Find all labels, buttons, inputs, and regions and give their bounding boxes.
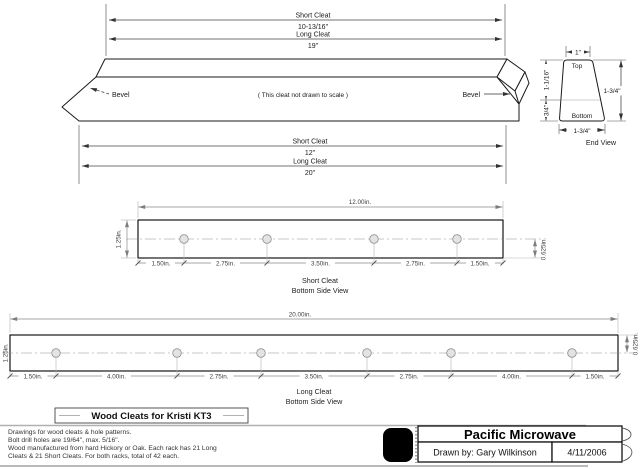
- cleat-drawing: Short Cleat 10-13/16" Long Cleat 19" Bev…: [0, 0, 640, 469]
- cleat-front-face: [62, 77, 519, 121]
- dim-value-short-cleat-top: 10-13/16": [298, 24, 329, 31]
- long-cleat-bottom-view: 20.00in. 1.25in. 0.625in. 1.50in. 4.00in…: [2, 312, 640, 407]
- short-cleat-caption-line1: Short Cleat: [302, 276, 338, 285]
- page-curl-bottom: [622, 444, 632, 461]
- overall-length-dimensions: [79, 125, 506, 184]
- chain-dim-label: 1.50in.: [24, 374, 43, 381]
- long-cleat-caption-line1: Long Cleat: [297, 387, 332, 396]
- chain-dim-label: 2.75in.: [216, 261, 235, 268]
- hole: [363, 349, 372, 358]
- end-view-lower-height: 3/4": [544, 104, 551, 116]
- cleat-top-face: [96, 59, 507, 77]
- bevel-label-right: Bevel: [462, 92, 480, 99]
- dim-label-long-cleat-top: Long Cleat: [296, 32, 330, 39]
- chain-dim-label: 1.50in.: [152, 261, 171, 268]
- hole: [263, 235, 272, 244]
- bevel-label-left: Bevel: [112, 92, 130, 99]
- dim-label-long-cleat-overall: Long Cleat: [293, 159, 327, 166]
- chain-dim-label: 1.50in.: [471, 261, 490, 268]
- hole: [447, 349, 456, 358]
- short-cleat-bottom-view: 12.00in. 1.25in. 0.625in. 1.50in. 2.75in…: [116, 199, 548, 295]
- end-view-caption: End View: [586, 138, 617, 147]
- dim-value-long-cleat-overall: 20": [305, 170, 316, 177]
- end-view: Top Bottom 1" 1-3/4" 1-3/4" 1-1/16" 3/4"…: [540, 46, 626, 147]
- dim-value-long-cleat-top: 19": [308, 43, 319, 50]
- long-cleat-hole-offset-dim: 0.625in.: [633, 333, 640, 356]
- end-view-upper-height: 1-1/16": [544, 69, 551, 90]
- cleat-3d-view: [62, 59, 529, 121]
- hole: [173, 349, 182, 358]
- company-block: Pacific Microwave Drawn by: Gary Wilkins…: [383, 426, 632, 463]
- dim-label-short-cleat-overall: Short Cleat: [292, 139, 327, 146]
- page-curl-top: [622, 428, 631, 441]
- long-cleat-caption-line2: Bottom Side View: [286, 397, 343, 406]
- end-view-bottom-width: 1-3/4": [573, 128, 591, 135]
- note-line: Drawings for wood cleats & hole patterns…: [8, 429, 132, 436]
- chain-dim-label: 2.75in.: [210, 374, 229, 381]
- short-cleat-length-dim: 12.00in.: [349, 199, 372, 206]
- drawn-by: Drawn by: Gary Wilkinson: [433, 448, 537, 458]
- chain-dim-label: 3.50in.: [311, 261, 330, 268]
- company-logo: [383, 428, 413, 462]
- hole: [568, 349, 577, 358]
- note-line: Wood manufactured from hard Hickory or O…: [8, 445, 217, 452]
- note-line: Cleats & 21 Short Cleats. For both racks…: [8, 453, 179, 460]
- company-name: Pacific Microwave: [464, 427, 576, 442]
- end-view-top-label: Top: [572, 63, 583, 70]
- long-cleat-width-dim: 1.25in.: [3, 343, 10, 362]
- dim-value-short-cleat-overall: 12": [305, 150, 316, 157]
- drawing-sheet: Short Cleat 10-13/16" Long Cleat 19" Bev…: [0, 0, 640, 469]
- chain-dim-label: 2.75in.: [400, 374, 419, 381]
- long-cleat-length-dim: 20.00in.: [289, 312, 312, 319]
- chain-dim-label: 1.50in.: [586, 374, 605, 381]
- hole: [180, 235, 189, 244]
- not-to-scale-note: ( This cleat not drawn to scale ): [258, 92, 348, 99]
- drawing-date: 4/11/2006: [567, 448, 606, 458]
- short-cleat-hole-offset-dim: 0.625in.: [541, 238, 548, 261]
- end-view-bottom-label: Bottom: [572, 113, 593, 120]
- chain-dim-label: 2.75in.: [406, 261, 425, 268]
- end-view-top-width: 1": [575, 50, 582, 57]
- chain-dim-label: 3.50in.: [305, 374, 324, 381]
- hole: [257, 349, 266, 358]
- short-cleat-width-dim: 1.25in.: [116, 229, 123, 248]
- hole: [52, 349, 61, 358]
- chain-dim-label: 4.00in.: [107, 374, 126, 381]
- dim-label-short-cleat-top: Short Cleat: [295, 13, 330, 20]
- hole: [370, 235, 379, 244]
- end-view-height: 1-3/4": [603, 88, 621, 95]
- short-cleat-caption-line2: Bottom Side View: [292, 286, 349, 295]
- drawing-title: Wood Cleats for Kristi KT3: [91, 411, 211, 422]
- chain-dim-label: 4.00in.: [502, 374, 521, 381]
- note-line: Bolt drill holes are 19/64", max. 5/16".: [8, 437, 120, 444]
- hole: [453, 235, 462, 244]
